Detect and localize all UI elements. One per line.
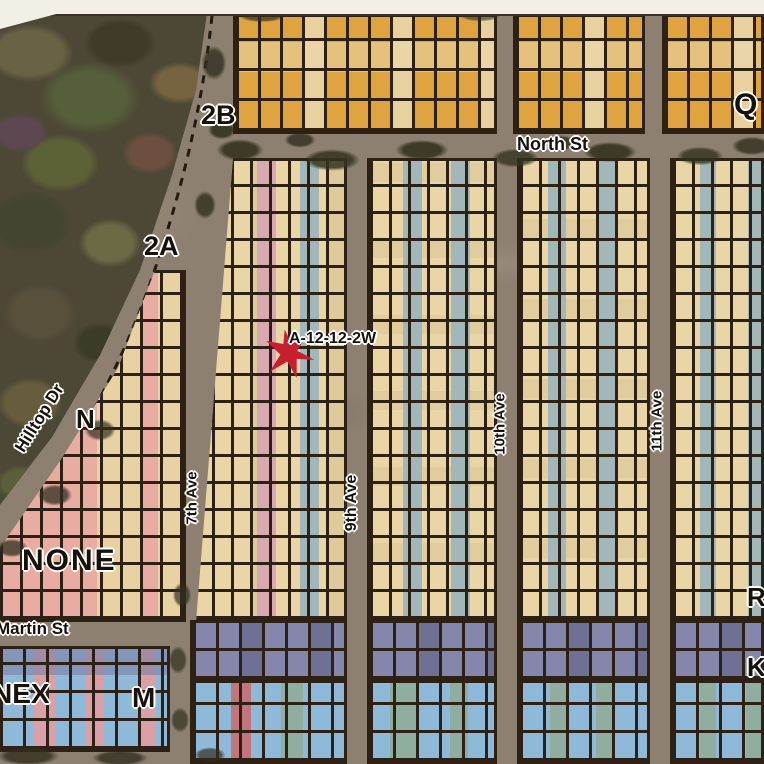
section-label-m: M [132, 682, 155, 714]
block-blue-row-1 [190, 680, 347, 764]
section-label-k: K [747, 652, 764, 683]
block-blue-row-3 [517, 680, 650, 764]
section-label-2b: 2B [201, 100, 236, 131]
section-label-n: N [76, 404, 95, 435]
block-10th-11th-lots [517, 158, 650, 622]
section-label-2a: 2A [144, 231, 179, 262]
block-purple-row-2 [367, 620, 497, 682]
street-label-north-st: North St [517, 134, 588, 155]
block-top-center-lots [513, 14, 645, 134]
section-label-q: Q [734, 88, 757, 122]
marker-lot-id-label: A-12-12-2W [289, 330, 376, 348]
page-edge-top [0, 0, 764, 16]
block-east-of-11th-lots [670, 158, 764, 622]
block-blue-row-4 [670, 680, 764, 764]
block-9th-10th-lots [367, 158, 497, 622]
block-2b-lots [233, 14, 497, 134]
page-edge-corner [0, 13, 60, 29]
section-label-r: R [747, 582, 764, 613]
block-purple-row-3 [517, 620, 650, 682]
block-blue-row-2 [367, 680, 497, 764]
block-purple-row-1 [190, 620, 347, 682]
street-label-martin-st: Martin St [0, 619, 69, 639]
section-label-none: NONE [22, 544, 117, 578]
section-label-nex: NEX [0, 678, 50, 710]
plat-map: 2B 2A Q N NONE NEX M R K North St Martin… [0, 0, 764, 764]
